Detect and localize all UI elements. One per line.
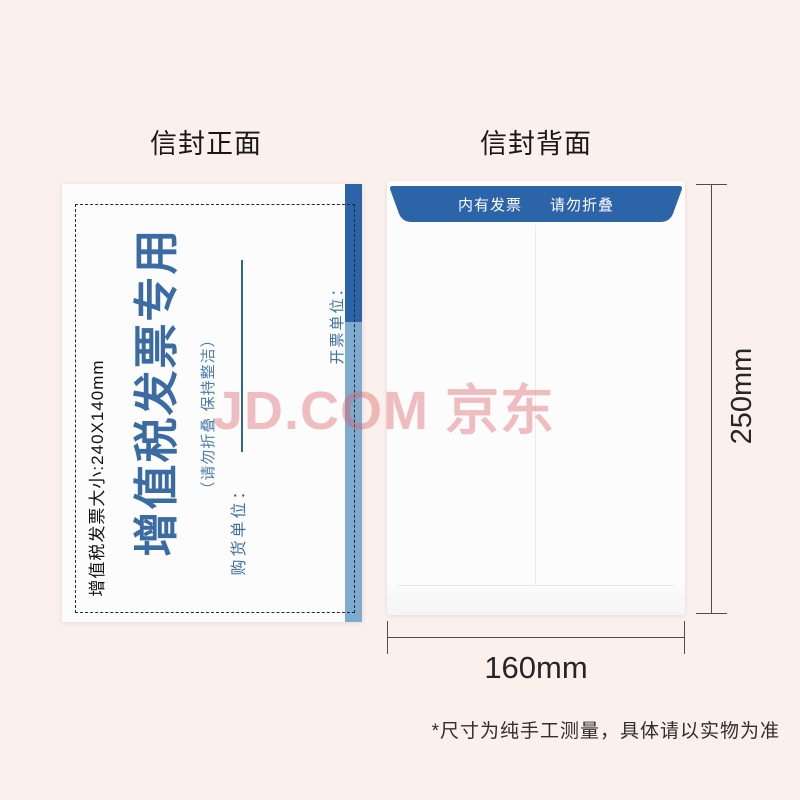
width-dimension-label: 160mm bbox=[465, 650, 607, 686]
disclaimer-text: *尺寸为纯手工测量，具体请以实物为准 bbox=[432, 716, 780, 743]
height-dimension-tick-bottom bbox=[696, 613, 727, 614]
height-dimension-line bbox=[711, 184, 712, 614]
jd-watermark: JD.COM 京东 bbox=[213, 366, 555, 445]
front-title: 信封正面 bbox=[150, 122, 262, 161]
width-dimension-tick-right bbox=[684, 621, 685, 654]
back-flap-text: 内有发票 请勿折叠 bbox=[389, 193, 683, 215]
back-title: 信封背面 bbox=[480, 122, 592, 161]
height-dimension-label: 250mm bbox=[726, 341, 758, 451]
envelope-main-text: 增值税发票专用 bbox=[124, 222, 180, 562]
flap-text-left: 内有发票 bbox=[458, 194, 522, 215]
width-dimension-line bbox=[387, 637, 685, 638]
flap-text-right: 请勿折叠 bbox=[550, 194, 614, 215]
product-image: 信封正面 信封背面 增值税发票专用 （请勿折叠 保持整洁） 购货单位： 开票单位… bbox=[0, 0, 800, 800]
buyer-label: 购货单位： bbox=[228, 468, 246, 588]
height-dimension-tick-top bbox=[696, 184, 727, 185]
back-bottom-fold-zone bbox=[387, 586, 685, 615]
front-size-note: 增值税发票大小:240X140mm bbox=[85, 343, 105, 613]
back-bottom-fold-line bbox=[397, 585, 675, 586]
issuer-label: 开票单位： bbox=[328, 277, 344, 367]
width-dimension-tick-left bbox=[387, 621, 388, 654]
